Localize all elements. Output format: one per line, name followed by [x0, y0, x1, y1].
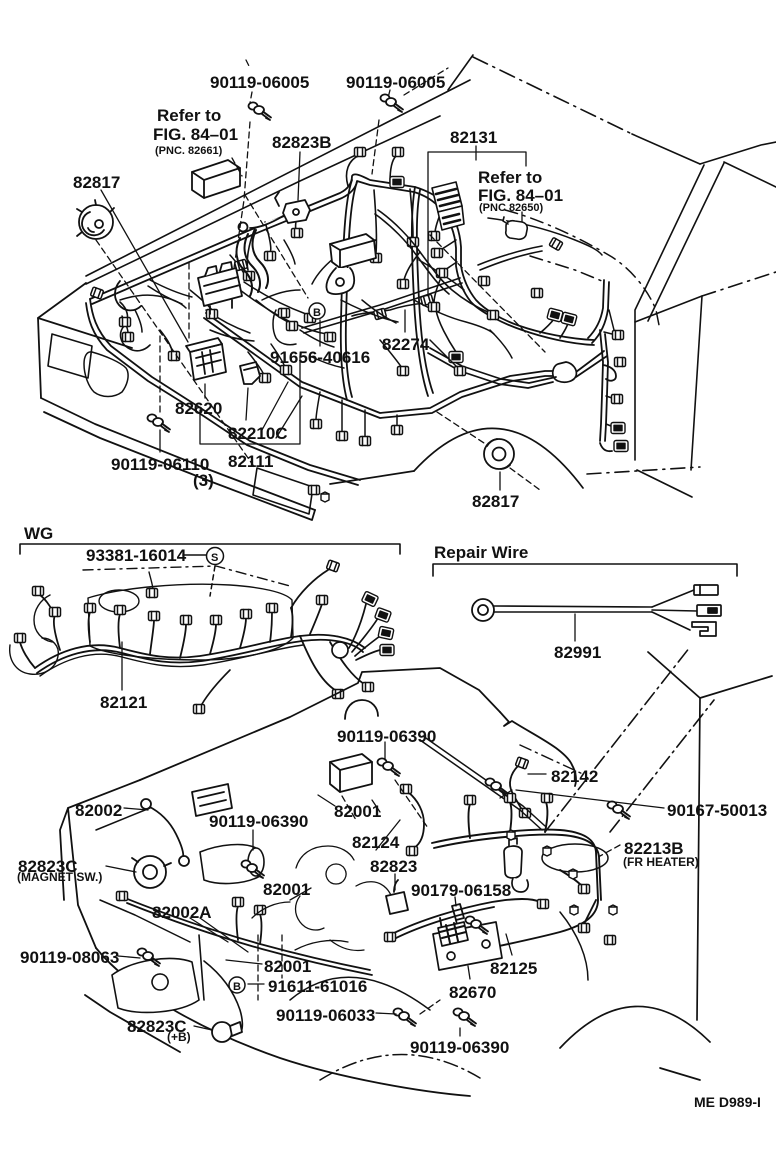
svg-text:91656-40616: 91656-40616	[270, 348, 370, 367]
svg-text:Refer to: Refer to	[157, 106, 221, 125]
svg-text:(FR HEATER): (FR HEATER)	[623, 855, 699, 869]
svg-text:82620: 82620	[175, 399, 222, 418]
svg-text:90119-06390: 90119-06390	[410, 1038, 509, 1057]
svg-text:82002: 82002	[75, 801, 122, 820]
svg-text:B: B	[233, 981, 241, 993]
svg-text:90119-06005: 90119-06005	[346, 73, 445, 92]
svg-text:91611-61016: 91611-61016	[268, 977, 367, 996]
svg-text:90167-50013: 90167-50013	[667, 801, 767, 820]
svg-text:82670: 82670	[449, 983, 496, 1002]
svg-text:82131: 82131	[450, 128, 497, 147]
svg-text:82991: 82991	[554, 643, 601, 662]
svg-text:82121: 82121	[100, 693, 147, 712]
svg-text:WG: WG	[24, 524, 53, 543]
svg-text:(PNC 82650): (PNC 82650)	[479, 202, 544, 214]
svg-text:(PNC. 82661): (PNC. 82661)	[155, 145, 223, 157]
svg-text:FIG. 84–01: FIG. 84–01	[153, 125, 238, 144]
svg-text:B: B	[313, 307, 321, 319]
svg-text:82125: 82125	[490, 959, 537, 978]
svg-text:90119-06005: 90119-06005	[210, 73, 309, 92]
svg-text:82817: 82817	[472, 492, 519, 511]
svg-text:82124: 82124	[352, 833, 400, 852]
svg-text:82823: 82823	[370, 857, 417, 876]
svg-text:Repair Wire: Repair Wire	[434, 543, 528, 562]
svg-text:ME D989-I: ME D989-I	[694, 1094, 761, 1110]
svg-text:Refer to: Refer to	[478, 168, 542, 187]
svg-text:(+B): (+B)	[167, 1030, 191, 1044]
svg-text:82210C: 82210C	[228, 424, 288, 443]
svg-text:82817: 82817	[73, 173, 120, 192]
svg-text:82111: 82111	[228, 452, 273, 471]
svg-text:82142: 82142	[551, 767, 598, 786]
svg-text:82823B: 82823B	[272, 133, 332, 152]
svg-text:(MAGNET SW.): (MAGNET SW.)	[17, 870, 102, 884]
svg-text:82001: 82001	[263, 880, 310, 899]
svg-text:90119-06390: 90119-06390	[337, 727, 436, 746]
svg-text:90119-08063: 90119-08063	[20, 948, 119, 967]
svg-text:82001: 82001	[334, 802, 381, 821]
svg-text:90119-06033: 90119-06033	[276, 1006, 375, 1025]
svg-text:90119-06390: 90119-06390	[209, 812, 308, 831]
svg-text:82002A: 82002A	[152, 903, 212, 922]
svg-text:90179-06158: 90179-06158	[411, 881, 511, 900]
svg-text:82274: 82274	[382, 335, 430, 354]
svg-text:82001: 82001	[264, 957, 311, 976]
svg-text:93381-16014: 93381-16014	[86, 546, 187, 565]
svg-text:(3): (3)	[193, 471, 214, 490]
svg-text:S: S	[211, 552, 218, 564]
